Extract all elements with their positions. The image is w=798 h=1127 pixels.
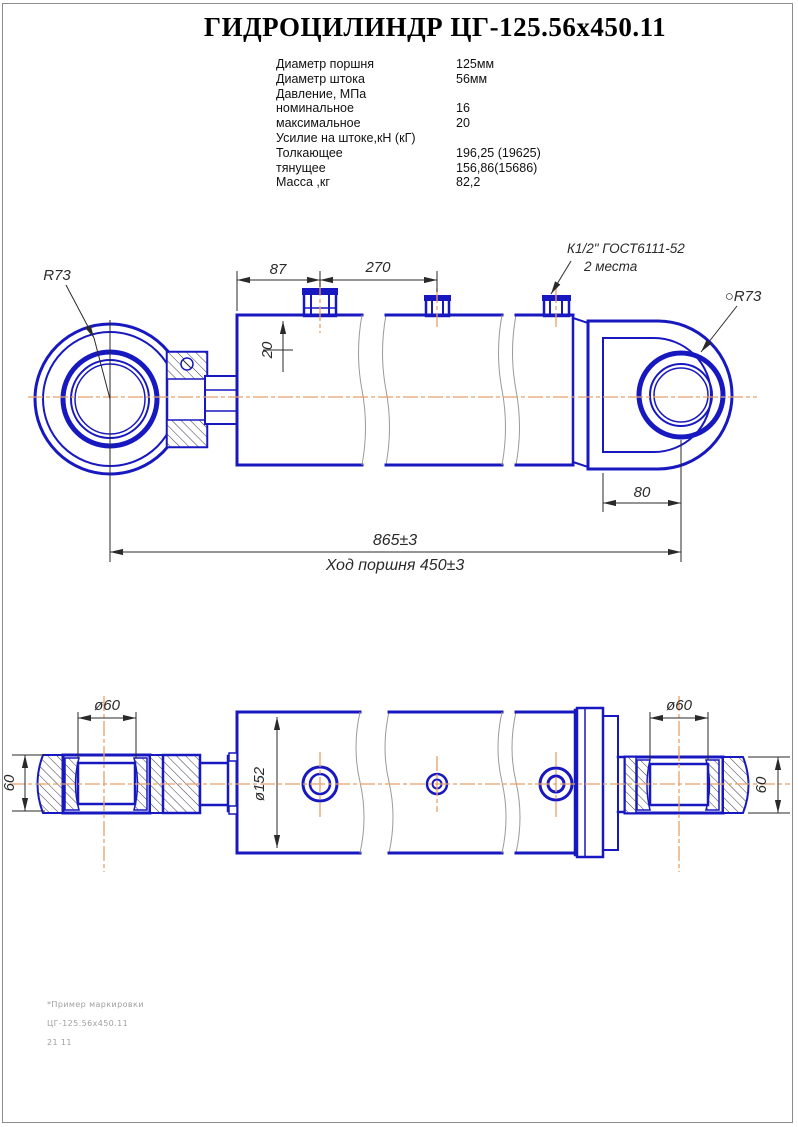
- port-thread-note: К1/2" ГОСТ6111-52: [567, 241, 685, 256]
- dim-60-left-label: 60: [1, 774, 18, 791]
- piston-stroke-label: Ход поршня 450±3: [325, 557, 465, 574]
- marking-note-line2: ЦГ-125.56х450.11: [47, 1019, 144, 1038]
- dim-20-label: 20: [259, 341, 276, 359]
- top-view-dimensions: 87 270 20 80 865±3 Ход поршня 450±3 R73: [43, 241, 762, 574]
- dim-270-label: 270: [364, 259, 391, 276]
- marking-note-line1: *Пример маркировки: [47, 1000, 144, 1019]
- dia-60-left-label: ø60: [94, 697, 121, 714]
- dim-length-label: 865±3: [373, 532, 417, 549]
- dim-87-label: 87: [270, 261, 287, 278]
- dia-60-right-label: ø60: [666, 697, 693, 714]
- cylinder-body: [237, 315, 588, 467]
- rod-end-block: [167, 352, 237, 447]
- radius-r73-right-label: ○R73: [725, 288, 762, 305]
- right-eye: [588, 321, 732, 469]
- dia-152-label: ø152: [251, 766, 268, 801]
- dim-80-label: 80: [634, 484, 651, 501]
- right-eye-section: [625, 757, 749, 813]
- dim-60-right-label: 60: [753, 776, 770, 793]
- bottom-view: ø152 ø60 ø60 60 60: [1, 696, 790, 872]
- marking-note-line3: 21 11: [47, 1038, 144, 1057]
- marking-note: *Пример маркировки ЦГ-125.56х450.11 21 1…: [47, 1000, 144, 1057]
- radius-r73-left-label: R73: [43, 267, 71, 284]
- drawing-canvas: 87 270 20 80 865±3 Ход поршня 450±3 R73: [0, 0, 798, 1127]
- drawing-sheet: ГИДРОЦИЛИНДР ЦГ-125.56х450.11 Диаметр по…: [0, 0, 798, 1127]
- port-thread-note-qty: 2 места: [583, 259, 638, 274]
- top-view: 87 270 20 80 865±3 Ход поршня 450±3 R73: [28, 241, 762, 574]
